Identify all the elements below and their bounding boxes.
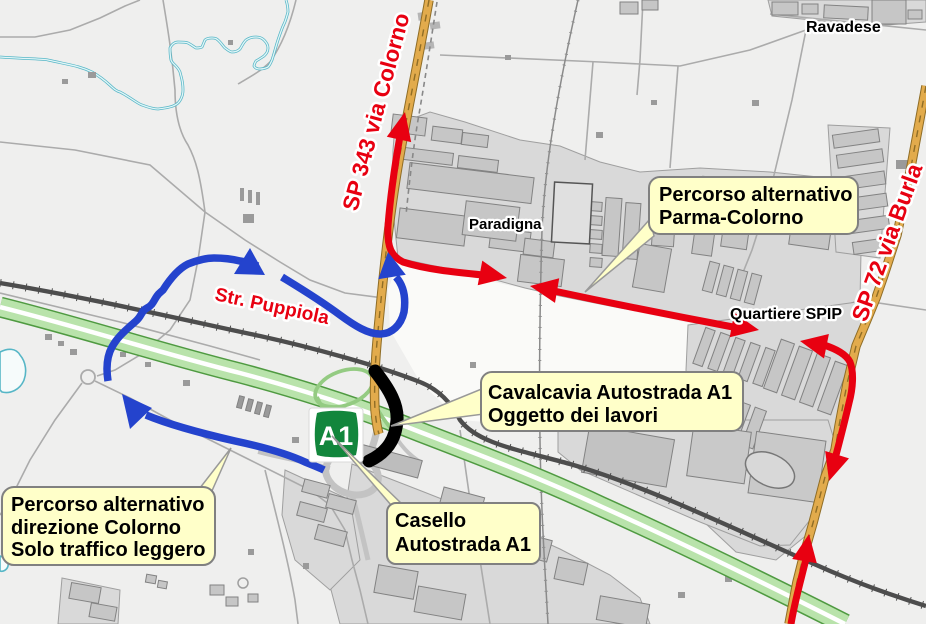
svg-text:Casello: Casello xyxy=(395,510,466,532)
svg-text:Percorso alternativo: Percorso alternativo xyxy=(11,494,204,516)
svg-text:Autostrada A1: Autostrada A1 xyxy=(395,534,531,556)
svg-text:Solo traffico leggero: Solo traffico leggero xyxy=(11,539,205,561)
svg-text:Quartiere SPIP: Quartiere SPIP xyxy=(730,306,842,323)
svg-text:Parma-Colorno: Parma-Colorno xyxy=(659,207,803,229)
svg-text:Ravadese: Ravadese xyxy=(806,19,881,36)
svg-text:Paradigna: Paradigna xyxy=(469,216,542,233)
svg-text:Oggetto dei lavori: Oggetto dei lavori xyxy=(488,405,658,427)
svg-text:direzione Colorno: direzione Colorno xyxy=(11,517,181,539)
svg-text:Cavalcavia Autostrada A1: Cavalcavia Autostrada A1 xyxy=(488,382,732,404)
svg-text:Percorso alternativo: Percorso alternativo xyxy=(659,184,852,206)
svg-text:A1: A1 xyxy=(319,421,354,451)
